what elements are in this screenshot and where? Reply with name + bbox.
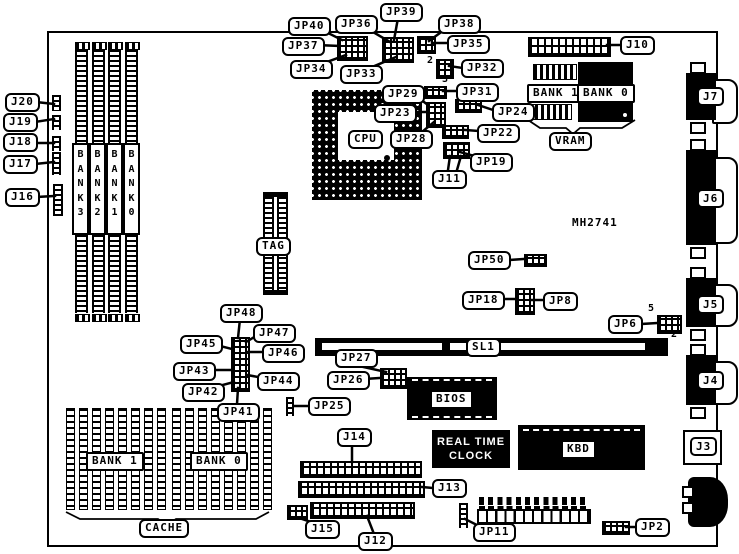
callout-jp44: JP44 [257,372,300,391]
callout-jp26: JP26 [327,371,370,390]
callout-jp11: JP11 [473,523,516,542]
tag-label: TAG [256,237,291,256]
cache-label: CACHE [139,519,189,538]
callout-jp43: JP43 [173,362,216,381]
callout-jp45: JP45 [180,335,223,354]
callout-jp23: JP23 [374,104,417,123]
callout-j11: J11 [432,170,467,189]
callout-jp48: JP48 [220,304,263,323]
callout-jp27: JP27 [335,349,378,368]
callout-jp6: JP6 [608,315,643,334]
callout-j14: J14 [337,428,372,447]
callout-j19: J19 [3,113,38,132]
callout-jp24: JP24 [492,103,535,122]
callout-jp25: JP25 [308,397,351,416]
callout-jp29: JP29 [382,85,425,104]
callout-jp33: JP33 [340,65,383,84]
callout-jp40: JP40 [288,17,331,36]
pin-number-jp6-5: 5 [648,303,654,314]
callout-jp37: JP37 [282,37,325,56]
j5-label: J5 [697,295,724,314]
pin-number-jp32-3: 3 [442,74,448,85]
callout-jp38: JP38 [438,15,481,34]
sl1-label: SL1 [466,338,501,357]
callout-j17: J17 [3,155,38,174]
cpu-label: CPU [348,130,383,149]
vram-label: VRAM [549,132,592,151]
bios-label: BIOS [430,390,473,409]
callout-jp41: JP41 [217,403,260,422]
callout-jp2: JP2 [635,518,670,537]
callout-jp34: JP34 [290,60,333,79]
callout-j13: J13 [432,479,467,498]
part-number: MH2741 [572,216,618,229]
callout-jp50: JP50 [468,251,511,270]
callout-j18: J18 [3,133,38,152]
j6-label: J6 [697,189,724,208]
j7-label: J7 [697,87,724,106]
callout-jp39: JP39 [380,3,423,22]
kbd-label: KBD [561,440,596,459]
callout-jp8: JP8 [543,292,578,311]
callout-j10: J10 [620,36,655,55]
callout-jp32: JP32 [461,59,504,78]
callout-jp31: JP31 [456,83,499,102]
j4-label: J4 [697,371,724,390]
j3-label: J3 [690,437,717,456]
callout-j12: J12 [358,532,393,551]
callout-jp22: JP22 [477,124,520,143]
callout-jp42: JP42 [182,383,225,402]
callout-jp28: JP28 [390,130,433,149]
pin-number-jp6-2: 2 [671,329,677,340]
callout-j15: J15 [305,520,340,539]
callout-j16: J16 [5,188,40,207]
cache-bank0-label: BANK 0 [190,452,248,471]
callout-jp47: JP47 [253,324,296,343]
callout-jp36: JP36 [335,15,378,34]
pin-number-jp32-2: 2 [427,55,433,66]
callout-jp19: JP19 [470,153,513,172]
callout-jp46: JP46 [262,344,305,363]
motherboard-diagram: BANK 3 BANK 2 BANK 1 BANK 0 J20 J19 J18 … [0,0,739,554]
vram-bank0-label: BANK 0 [577,84,635,103]
cache-bank1-label: BANK 1 [86,452,144,471]
callout-jp35: JP35 [447,35,490,54]
callout-j20: J20 [5,93,40,112]
callout-jp18: JP18 [462,291,505,310]
